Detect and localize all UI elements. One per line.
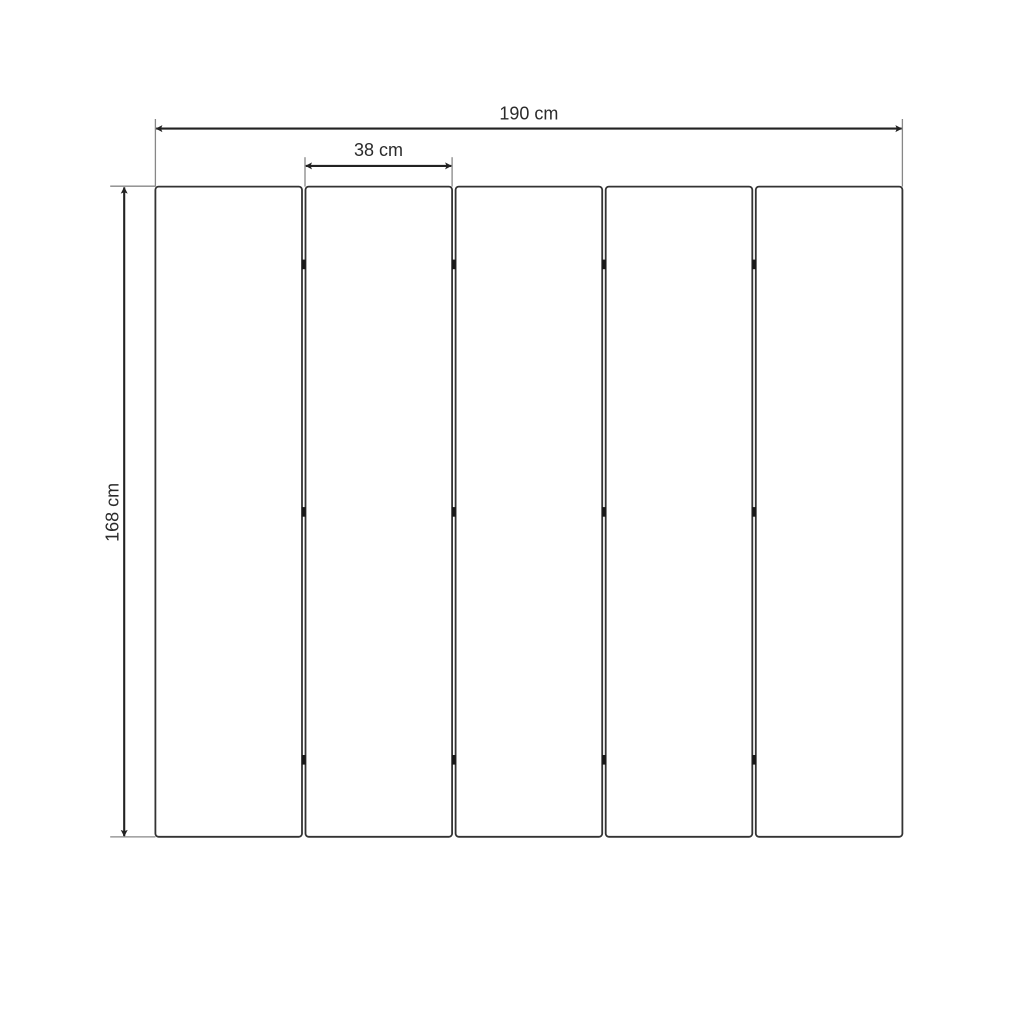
svg-text:38 cm: 38 cm: [354, 140, 403, 160]
svg-text:168 cm: 168 cm: [102, 483, 122, 542]
svg-text:190 cm: 190 cm: [499, 104, 558, 124]
